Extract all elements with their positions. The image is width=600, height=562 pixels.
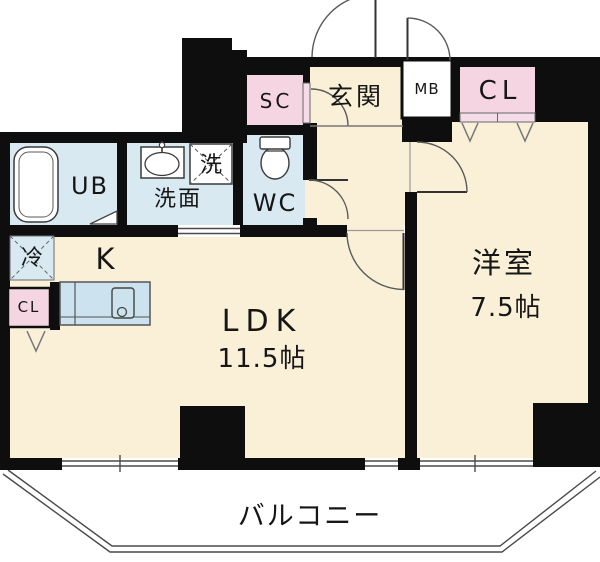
bedroom-doorway-floor: [405, 142, 417, 192]
bedroom-closet-label: CL: [479, 76, 522, 106]
western-room-size-label: 7.5帖: [470, 293, 541, 323]
kitchen-sink: [112, 288, 134, 318]
vanity-tap-knob: [159, 142, 164, 147]
meter-box-label: MB: [414, 80, 439, 98]
wc-doorway-floor: [303, 180, 317, 218]
wall-top-left: [0, 132, 182, 143]
wall-bottom-foot: [398, 458, 420, 470]
toilet-tank: [260, 137, 290, 149]
wall-bath-washroom: [117, 143, 127, 225]
closet-slide-panel-2: [498, 113, 536, 122]
kitchen-counter: [60, 282, 150, 325]
floorplan: UB 洗面 洗 WC SC 玄関 MB CL 冷 K CL LDK 11.5帖 …: [0, 0, 600, 562]
bedroom-window-gap: [420, 458, 533, 470]
wall-chunk-a: [182, 38, 232, 143]
wall-corner-chunk: [535, 57, 600, 122]
bathtub: [14, 147, 58, 222]
entrance-label: 玄関: [328, 82, 384, 111]
toilet-fixture: [260, 137, 290, 179]
washroom-label: 洗面: [154, 187, 202, 212]
wall-wc-right-upper: [303, 135, 317, 180]
wall-center-vertical: [405, 192, 417, 458]
washer-label: 洗: [200, 153, 222, 178]
wall-below-mb: [402, 118, 452, 142]
shoe-closet-label: SC: [260, 89, 293, 113]
kitchen-label: K: [95, 242, 115, 276]
wall-washroom-wc: [233, 143, 243, 225]
wall-kitchen-cl: [50, 282, 60, 330]
toilet-label: WC: [253, 189, 298, 217]
bath-label: UB: [71, 172, 109, 200]
washroom-slide-gap: [178, 225, 240, 237]
toilet-bowl: [261, 147, 289, 179]
fridge-label: 冷: [21, 246, 43, 271]
pillar-ldk: [180, 406, 245, 468]
wall-sanitary-bottom-left: [0, 225, 178, 237]
wall-sc-strip-top: [303, 75, 310, 83]
wall-wc-right-lower: [303, 218, 317, 225]
floorplan-svg: UB 洗面 洗 WC SC 玄関 MB CL 冷 K CL LDK 11.5帖 …: [0, 0, 600, 562]
ldk-label: LDK: [222, 304, 303, 339]
closet-slide-panel-1: [460, 113, 498, 122]
kitchen-closet-label: CL: [18, 298, 41, 316]
small-window-gap: [365, 458, 398, 470]
western-room-label: 洋室: [472, 246, 536, 280]
wall-above-sc: [240, 57, 310, 75]
wall-bottom-1: [0, 458, 62, 470]
shoe-closet-door-strip: [303, 83, 310, 123]
wall-hall-bottom: [240, 225, 347, 237]
pillar-bottom-right: [533, 403, 600, 467]
balcony-label: バルコニー: [238, 501, 382, 532]
wall-wc-top: [243, 125, 317, 135]
wall-right: [588, 122, 600, 403]
vanity-basin: [145, 153, 179, 176]
ldk-size-label: 11.5帖: [218, 344, 307, 374]
